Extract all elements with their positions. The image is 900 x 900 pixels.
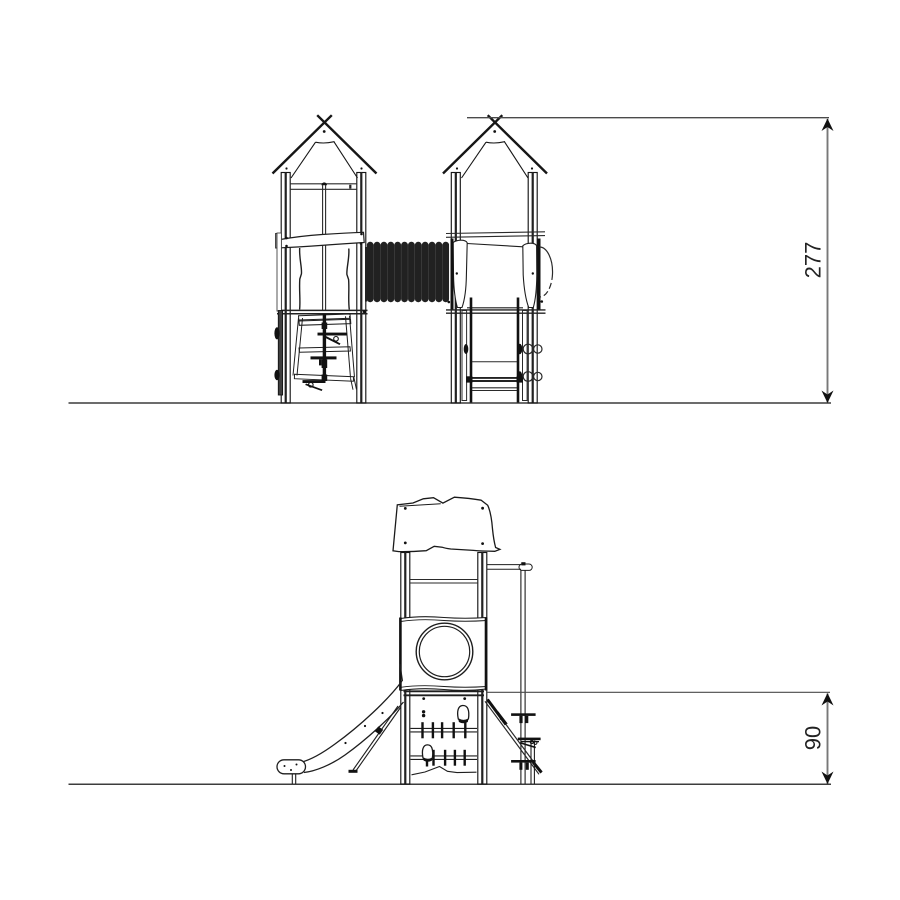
svg-text:90: 90 <box>801 726 826 750</box>
svg-text:277: 277 <box>801 242 826 279</box>
